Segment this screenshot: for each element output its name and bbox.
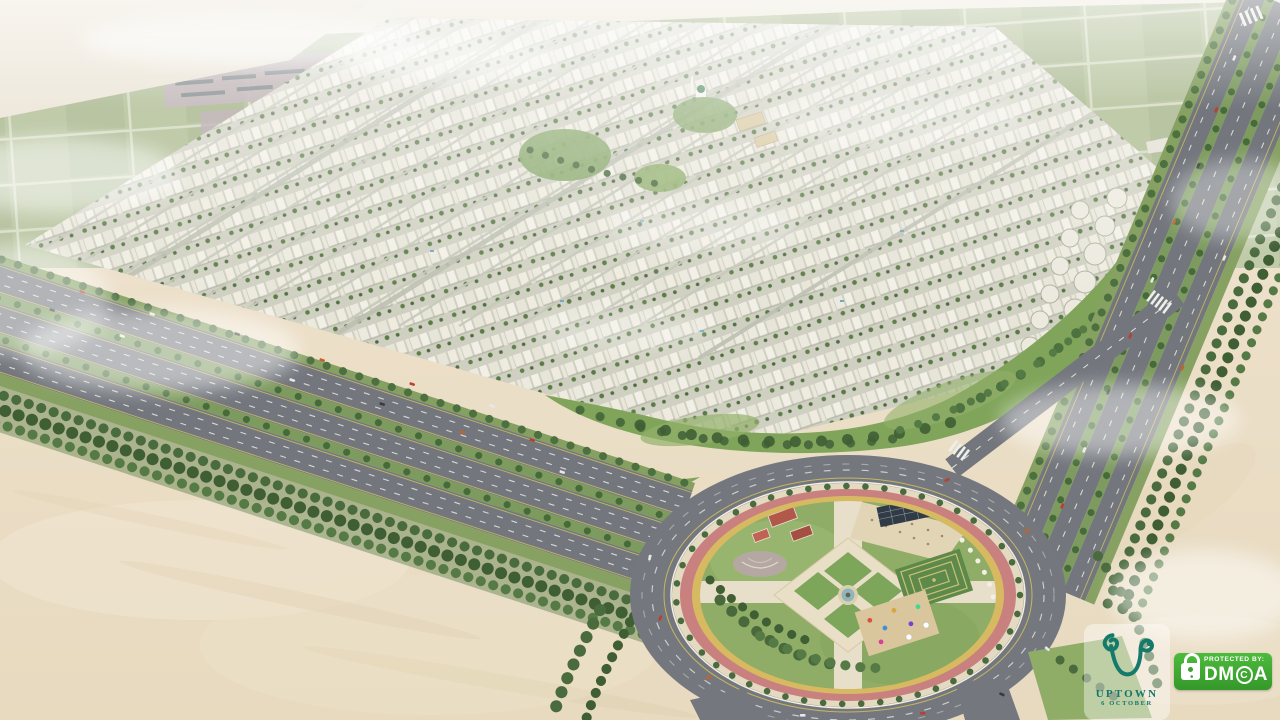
dmca-brand-text: DMCA [1204, 664, 1268, 686]
skate-area [733, 551, 787, 577]
scene-canvas [0, 0, 1280, 720]
dmca-protection-badge[interactable]: PROTECTED BY: DMCA [1174, 653, 1272, 690]
logo-subtitle-text: 6 OCTOBER [1101, 700, 1153, 708]
uptown-monogram-icon [1098, 628, 1156, 686]
roundabout-central-park [671, 482, 1025, 708]
fountain [838, 585, 858, 605]
dmca-protected-by-label: PROTECTED BY: [1204, 656, 1268, 664]
padlock-icon [1181, 663, 1200, 680]
copyright-circle-icon: C [1236, 666, 1253, 684]
logo-brand-text: UPTOWN [1096, 688, 1159, 700]
uptown-logo-watermark: UPTOWN 6 OCTOBER [1084, 624, 1170, 720]
top-haze-veil [0, 0, 1280, 110]
aerial-masterplan-render: UPTOWN 6 OCTOBER PROTECTED BY: DMCA [0, 0, 1280, 720]
dmca-brand-dm: DM [1204, 664, 1235, 686]
dmca-brand-a: A [1254, 664, 1268, 686]
